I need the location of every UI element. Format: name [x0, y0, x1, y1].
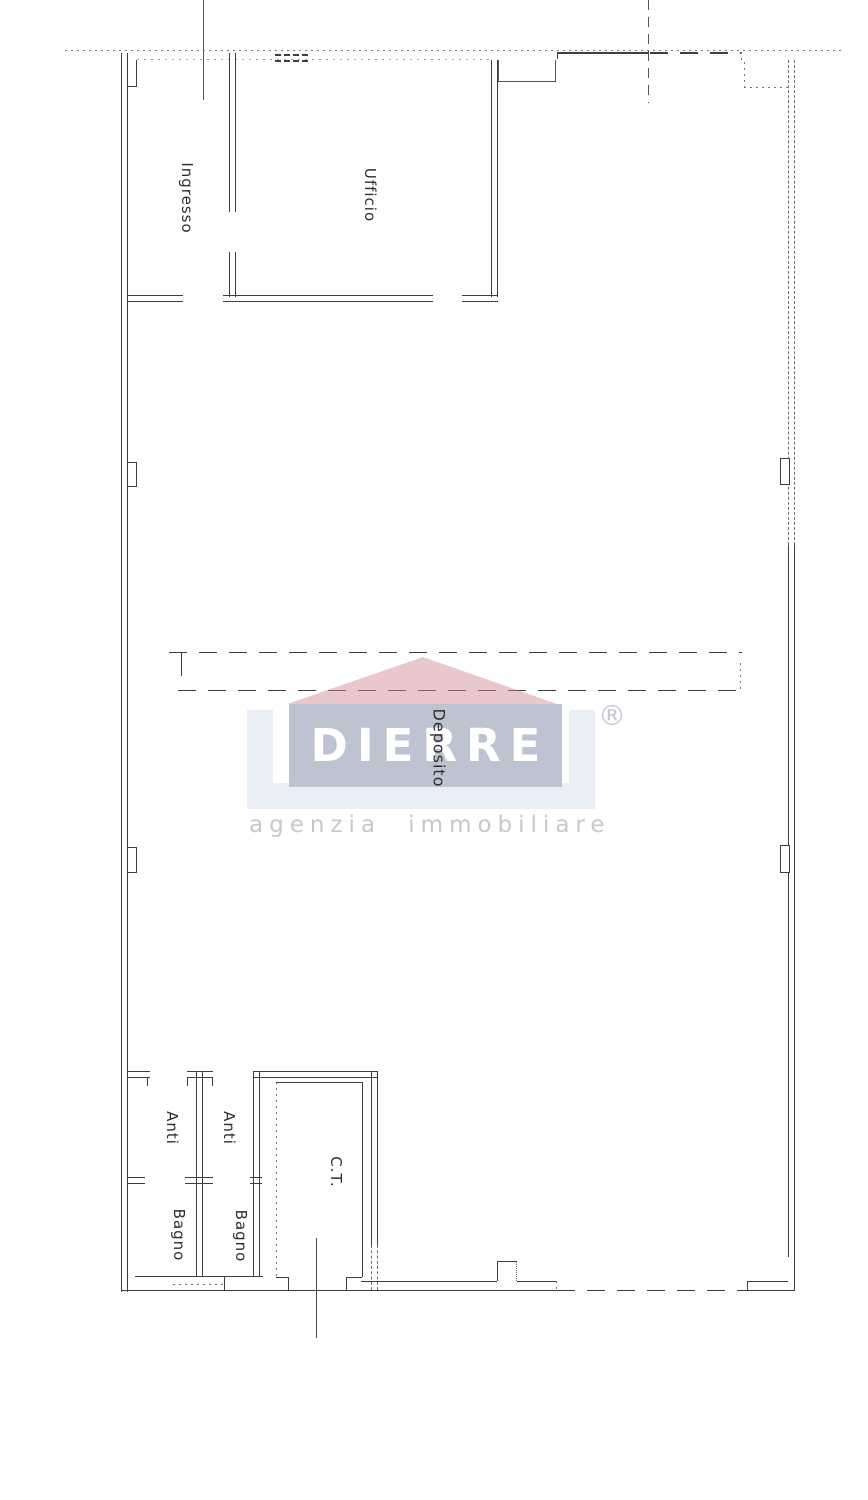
bottom-wall-outer-right — [747, 1290, 795, 1291]
ct-inner-right-wall — [362, 1082, 363, 1277]
top-wall-dashed-segment — [650, 52, 742, 54]
room-label-deposito: Deposito — [430, 709, 449, 788]
bath-mid-wall-stub-2 — [185, 1177, 213, 1184]
bath-mid-wall-stub-1 — [128, 1177, 145, 1184]
bottom-wall-outer-left — [121, 1290, 557, 1291]
bath-divider-2 — [253, 1071, 260, 1277]
top-wall-double-dash — [275, 54, 308, 62]
left-wall-pilaster-upper — [127, 462, 137, 487]
ingresso-divider-lower — [229, 252, 236, 297]
left-wall-top-step — [128, 60, 137, 87]
top-wall-notch — [498, 60, 556, 82]
ingresso-divider-upper — [229, 53, 236, 212]
ct-step-left-vertical — [288, 1277, 289, 1290]
right-wall-pilaster-upper — [780, 458, 790, 485]
watermark-tagline: agenzia immobiliare — [249, 812, 611, 838]
bottom-wall-notch — [497, 1261, 517, 1281]
ct-right-wall — [371, 1071, 378, 1245]
right-wall-lower — [788, 545, 795, 1257]
top-right-corner-horizontal — [744, 87, 788, 88]
ingresso-bottom-wall — [128, 295, 183, 302]
right-wall-outer-tail — [794, 1257, 795, 1291]
ref-line-bottom-center — [316, 1238, 317, 1338]
bottom-wall-inner-1 — [361, 1281, 497, 1282]
top-boundary-inner-dots — [137, 59, 492, 60]
top-wall-tick-right — [741, 52, 742, 62]
room-label-bagno-2: Bagno — [232, 1210, 250, 1263]
right-wall-pilaster-lower — [780, 845, 790, 873]
deposito-tick-right — [740, 663, 741, 691]
ct-top-wall — [253, 1071, 377, 1078]
watermark-logo-box: DIERRE — [289, 704, 562, 787]
bath-mid-wall-stub-3 — [250, 1177, 262, 1184]
watermark-brand: DIERRE — [302, 723, 550, 768]
bath-bottom-wall — [135, 1276, 263, 1277]
top-wall-solid-segment — [557, 52, 649, 54]
room-label-ingresso: Ingresso — [178, 162, 196, 233]
bath-divider-1 — [196, 1071, 203, 1277]
top-wall-tick-left — [557, 52, 558, 59]
ct-inner-left-wall — [276, 1082, 277, 1277]
bath-door-jamb-2b — [212, 1077, 213, 1086]
bottom-wall-right-step — [747, 1281, 748, 1290]
bottom-wall-inner-2 — [517, 1281, 557, 1282]
bath-bottom-dotted-line — [173, 1284, 223, 1285]
ingresso-ufficio-bottom-wall — [223, 295, 433, 302]
ct-inner-top-wall — [276, 1082, 362, 1083]
watermark-roof-triangle — [287, 657, 557, 704]
ufficio-right-wall — [491, 60, 498, 297]
deposito-tick-left — [181, 652, 182, 676]
top-right-corner-vertical — [744, 62, 745, 88]
bottom-wall-outer-opening — [557, 1290, 747, 1291]
bath-bottom-connector — [224, 1277, 225, 1290]
bottom-wall-tick — [556, 1281, 557, 1291]
room-label-anti-1: Anti — [163, 1111, 181, 1145]
ct-step-right-vertical — [346, 1277, 347, 1290]
bath-door-jamb-1 — [147, 1077, 148, 1086]
top-boundary-line — [65, 50, 845, 51]
registered-trademark-symbol: ® — [598, 702, 626, 730]
room-label-bagno-1: Bagno — [170, 1209, 188, 1262]
ct-step-right-horizontal — [346, 1277, 362, 1278]
room-label-ufficio: Ufficio — [361, 168, 379, 222]
room-label-ct: C.T. — [327, 1156, 345, 1187]
bath-door-jamb-2a — [187, 1077, 188, 1086]
floor-plan: DIERRE ® agenzia immobiliare Ingresso Uf… — [0, 0, 868, 1500]
left-wall — [121, 53, 128, 1292]
room-label-anti-2: Anti — [220, 1111, 238, 1145]
left-wall-pilaster-lower — [127, 847, 137, 873]
ct-right-wall-dashed — [371, 1245, 378, 1290]
bottom-wall-inner-3 — [747, 1281, 788, 1282]
deposito-dashed-top — [169, 652, 742, 653]
